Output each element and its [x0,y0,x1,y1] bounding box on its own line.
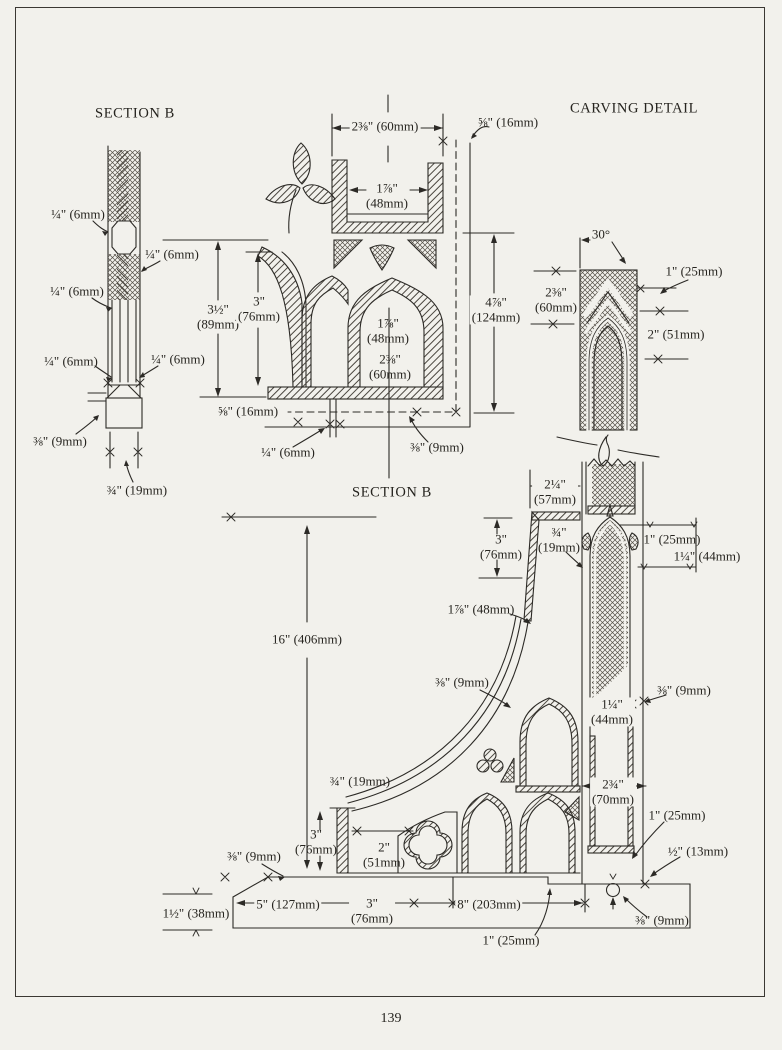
carving-detail-drawing [531,237,688,466]
page-number: 139 [381,1011,402,1027]
bracket-section-drawing [163,459,697,936]
section-b-top-title: SECTION B [95,106,175,123]
carving-detail-title: CARVING DETAIL [570,101,698,118]
technical-drawing-canvas [0,0,782,1050]
left-profile-drawing [76,146,160,482]
section-b-bottom-title: SECTION B [352,485,432,502]
scanned-plan-page: { "page": { "number": "139", "paper_colo… [0,0,782,1050]
tracery-plan-drawing [163,95,514,478]
